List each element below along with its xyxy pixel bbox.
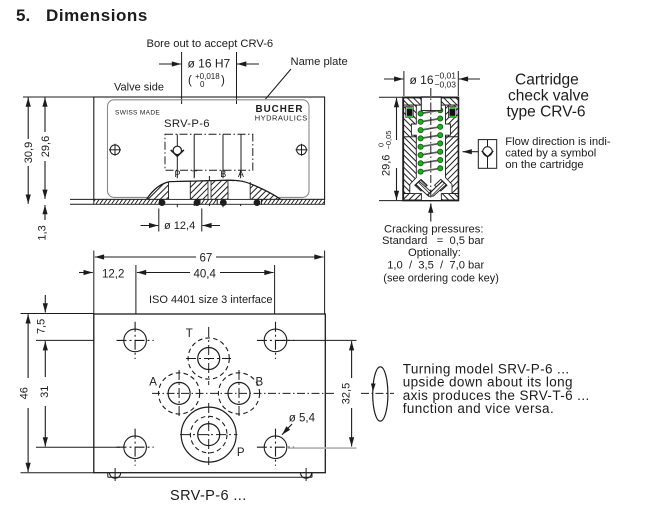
svg-text:Bore out to accept CRV-6: Bore out to accept CRV-6 [147,38,274,50]
svg-text:T: T [186,328,193,340]
svg-text:5.: 5. [16,6,30,25]
svg-text:Valve side: Valve side [114,82,164,94]
svg-text:A: A [149,377,157,389]
svg-text:SRV-P-6 ...: SRV-P-6 ... [170,488,247,504]
svg-text:67: 67 [200,253,213,265]
svg-text:B: B [220,169,226,179]
svg-text:30,9: 30,9 [23,142,35,163]
svg-text:ø 16 H7: ø 16 H7 [188,57,231,71]
svg-text:1,3: 1,3 [37,225,49,240]
svg-text:type CRV-6: type CRV-6 [507,104,586,121]
svg-text:check valve: check valve [508,88,589,105]
svg-text:A: A [238,169,244,179]
svg-text:Dimensions: Dimensions [46,6,148,25]
svg-text:SWISS MADE: SWISS MADE [115,110,160,117]
svg-text:SRV-P-6: SRV-P-6 [164,118,210,130]
svg-text:0: 0 [200,80,205,89]
svg-text:ISO 4401 size 3 interface: ISO 4401 size 3 interface [149,294,273,306]
svg-text:ø 5,4: ø 5,4 [289,413,316,425]
svg-text:Standard = 0,5 bar: Standard = 0,5 bar [382,235,485,247]
svg-text:1,0 / 3,5 / 7,0 bar: 1,0 / 3,5 / 7,0 bar [387,259,484,271]
svg-text:−0,05: −0,05 [384,131,393,150]
svg-text:T: T [192,169,198,179]
svg-text:(see ordering code key): (see ordering code key) [383,272,499,284]
svg-text:): ) [221,75,225,87]
svg-text:(: ( [188,75,192,87]
svg-text:31: 31 [39,386,51,398]
svg-text:P: P [175,169,181,179]
svg-text:cated by a symbol: cated by a symbol [505,148,596,160]
svg-text:on the cartridge: on the cartridge [505,159,584,171]
svg-text:Cracking pressures:: Cracking pressures: [384,224,483,236]
svg-text:−0,03: −0,03 [435,80,457,90]
svg-text:Optionally:: Optionally: [408,247,461,259]
svg-text:Flow direction is indi-: Flow direction is indi- [505,136,611,148]
svg-text:B: B [256,377,264,389]
svg-text:32,5: 32,5 [341,383,353,404]
svg-text:ø 16: ø 16 [410,73,434,87]
svg-text:Name plate: Name plate [291,56,348,68]
svg-text:P: P [237,447,245,459]
svg-text:46: 46 [19,387,31,399]
svg-text:+0,018: +0,018 [195,72,220,81]
svg-text:HYDRAULICS: HYDRAULICS [255,113,308,122]
svg-text:40,4: 40,4 [194,268,217,280]
svg-text:7,5: 7,5 [36,319,48,334]
svg-text:function and vice versa.: function and vice versa. [403,401,554,416]
svg-text:29,6: 29,6 [40,136,52,157]
svg-text:12,2: 12,2 [102,268,124,280]
svg-text:29,6: 29,6 [381,155,393,176]
svg-text:ø 12,4: ø 12,4 [164,220,195,232]
svg-text:Cartridge: Cartridge [515,72,579,89]
